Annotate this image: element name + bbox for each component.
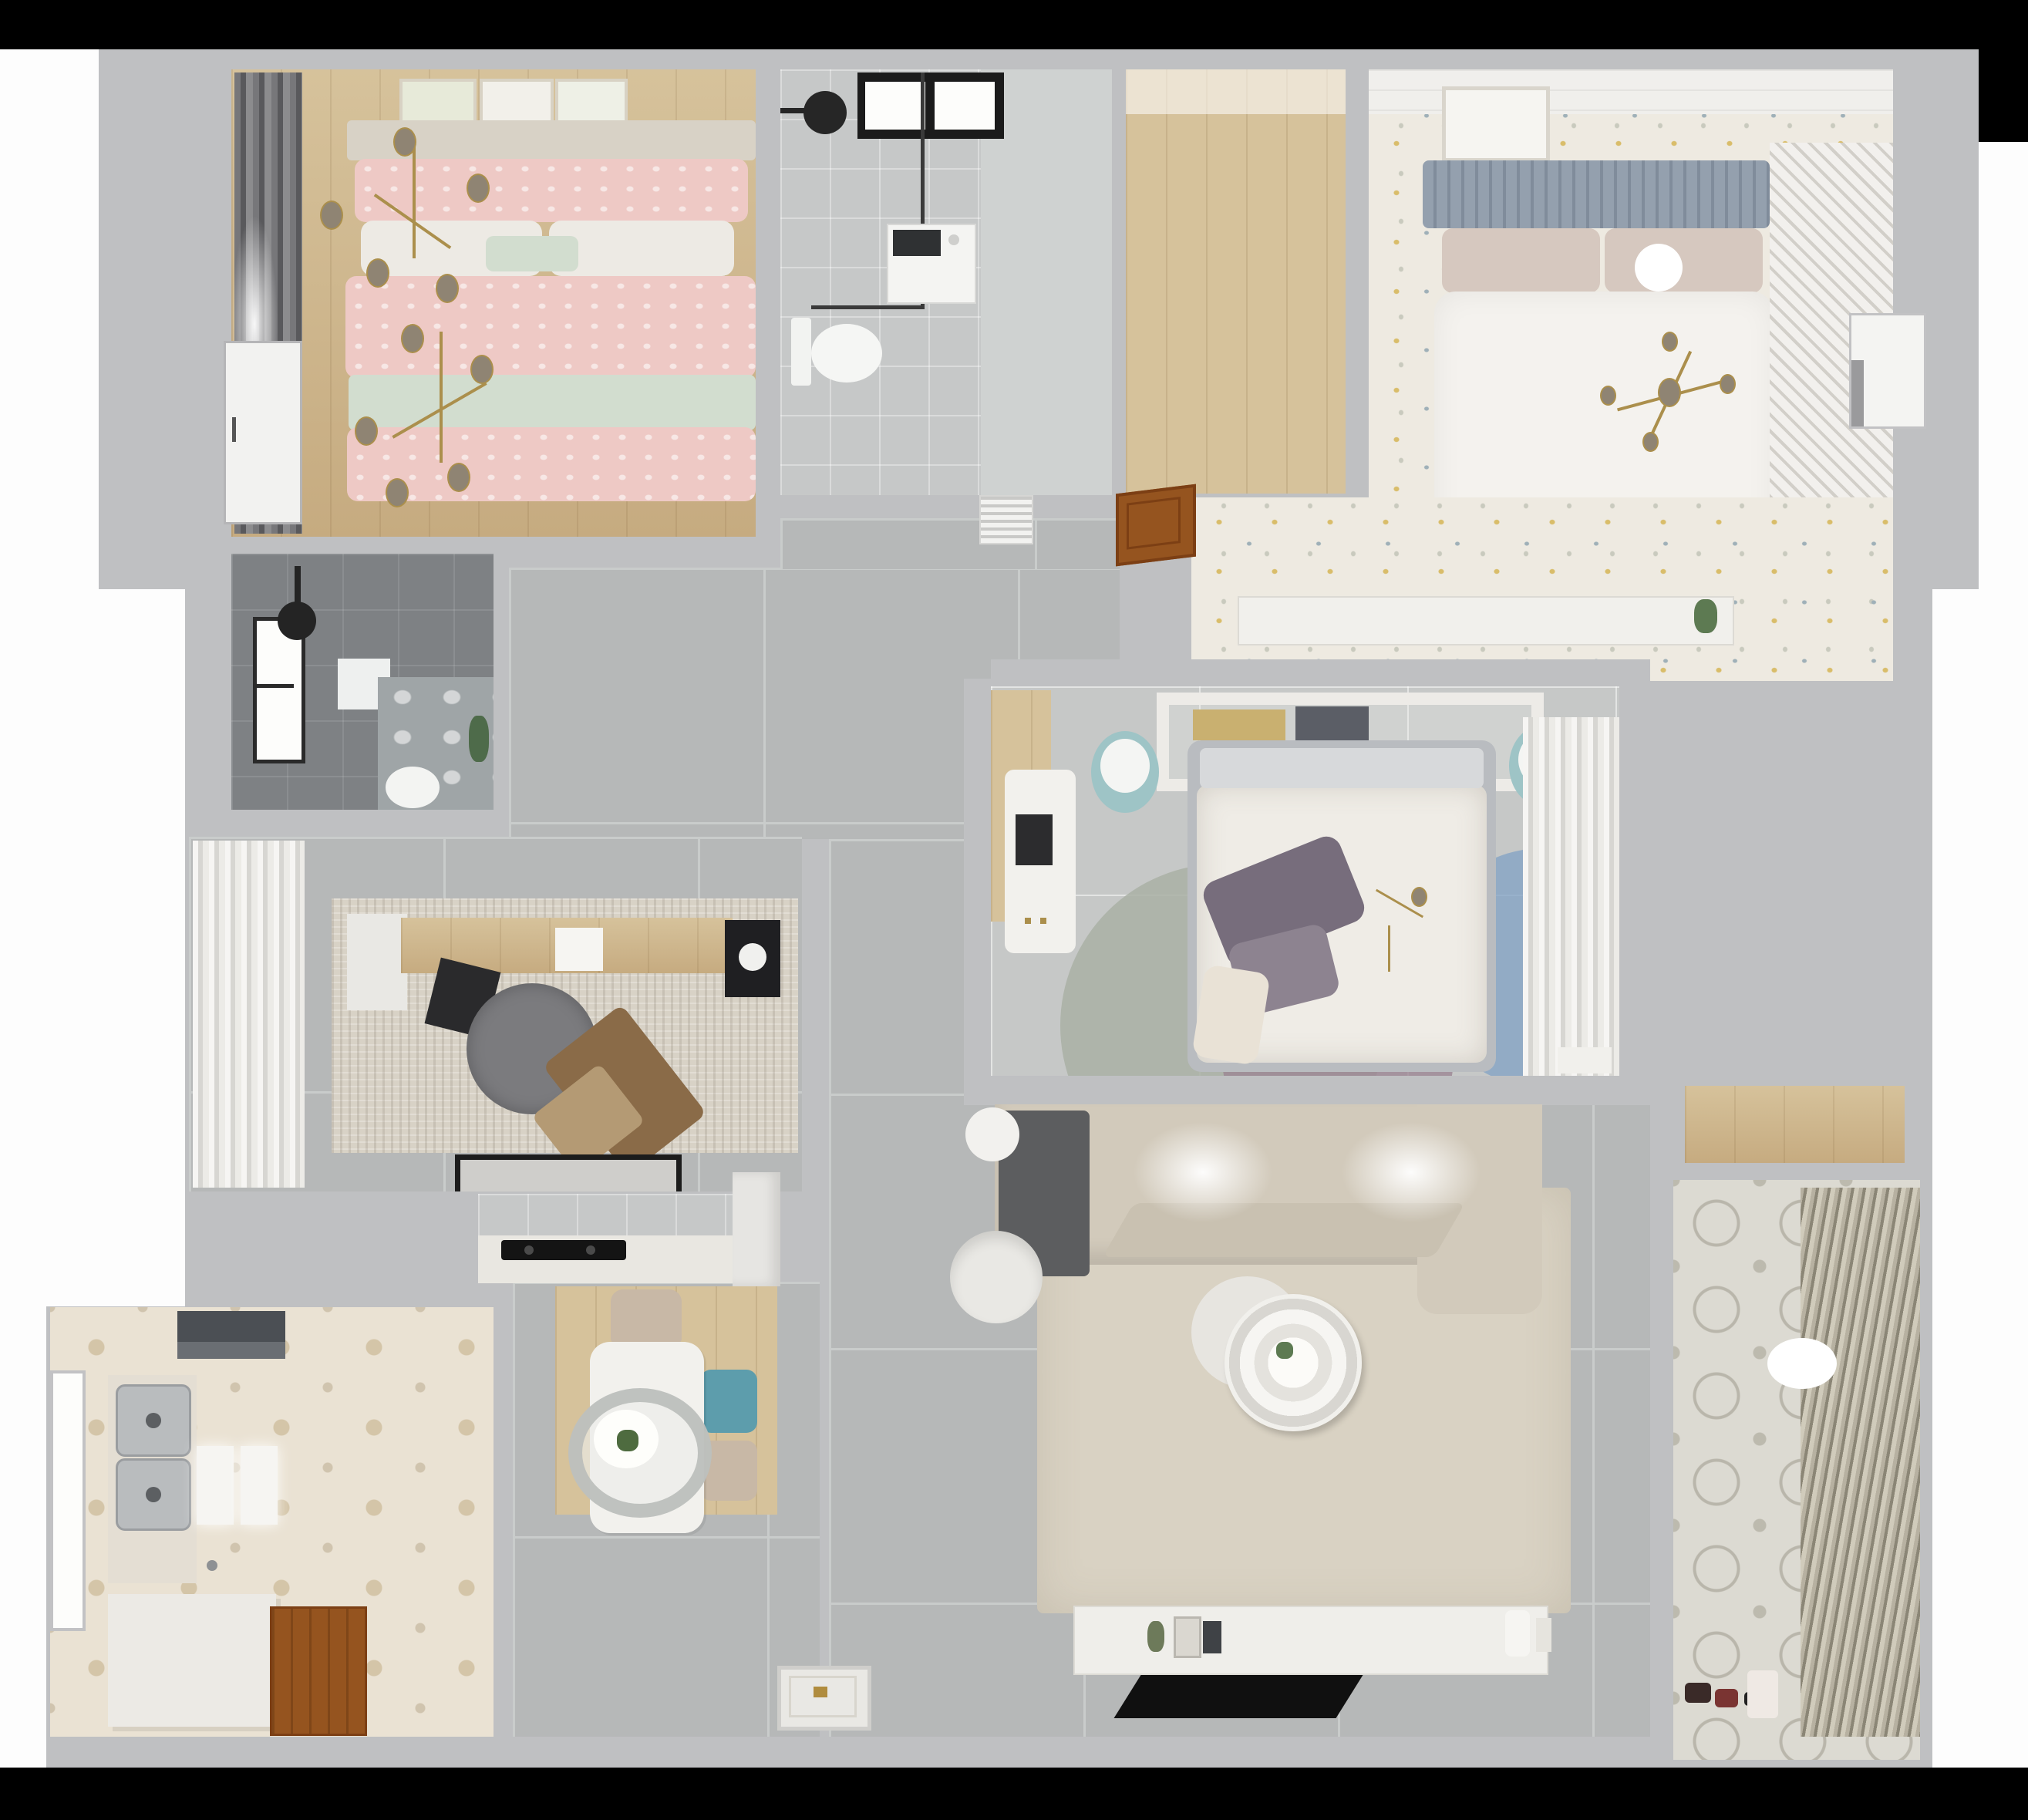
room-kitchen <box>50 1307 494 1737</box>
shower-head <box>278 602 316 640</box>
sheer-wardrobe <box>1523 717 1619 1076</box>
wall-art-frame <box>399 79 477 125</box>
niche-wood-cabinet <box>1685 1086 1905 1163</box>
hallway-under-bath <box>780 518 1120 569</box>
toy <box>1685 1683 1711 1703</box>
desk-white-panel <box>347 914 407 1010</box>
letterbox-top <box>0 0 2028 49</box>
light-spot <box>1134 1122 1272 1222</box>
books <box>1295 706 1369 740</box>
slat-headboard <box>1423 160 1770 228</box>
armchair <box>950 1231 1043 1323</box>
ceiling-lamp <box>1767 1338 1837 1389</box>
room-main-bathroom <box>780 69 1112 495</box>
room-balcony <box>1673 1180 1920 1760</box>
island-counter <box>108 1594 276 1727</box>
table-sprig <box>1276 1342 1293 1359</box>
room-study <box>189 837 802 1191</box>
range-hood <box>177 1311 285 1359</box>
shower-stem <box>295 566 301 605</box>
ball-lamp <box>1635 244 1683 292</box>
console-frame <box>1203 1621 1221 1653</box>
bed <box>1187 740 1496 1072</box>
sputnik-chandelier <box>1600 332 1747 463</box>
console-cup <box>1536 1618 1551 1652</box>
door-mat <box>455 1154 682 1191</box>
sheer-curtains <box>193 841 305 1188</box>
pillow <box>1605 228 1763 293</box>
dining-chair-beige <box>611 1289 682 1343</box>
shower-glass <box>811 305 925 309</box>
dressing-corridor <box>1191 497 1893 681</box>
gold-chandelier <box>320 127 505 335</box>
room-shower <box>231 554 494 810</box>
tv-console <box>1073 1606 1548 1675</box>
toy <box>1715 1689 1738 1707</box>
induction-cooktop <box>501 1240 626 1260</box>
tall-cabinet <box>733 1172 780 1286</box>
ceiling-shade <box>1126 69 1346 114</box>
laptop <box>1016 814 1053 865</box>
picture-frame <box>1442 86 1550 162</box>
console-frame <box>1174 1616 1201 1658</box>
shower-head <box>803 91 847 134</box>
round-stool <box>1091 731 1159 813</box>
shower-arm <box>780 108 808 113</box>
console-bottle <box>1147 1621 1164 1652</box>
dining-chair-teal <box>700 1370 757 1433</box>
floor-plan-render <box>0 0 2028 1820</box>
white-door <box>224 341 302 524</box>
wall <box>1619 686 1673 1105</box>
sink-basin <box>116 1458 191 1531</box>
desk <box>1005 770 1076 953</box>
bathroom-window <box>857 72 1004 139</box>
open-wooden-door <box>1116 484 1196 567</box>
plant <box>469 716 489 762</box>
console-shelf <box>1238 596 1734 645</box>
wall-art-frame <box>480 79 554 125</box>
entry-mat <box>777 1666 871 1731</box>
pillow <box>1442 228 1600 293</box>
sink-basin <box>116 1384 191 1457</box>
laundry-bag <box>1747 1670 1778 1718</box>
table-plant <box>617 1430 638 1451</box>
side-table <box>965 1107 1019 1161</box>
flat-tv <box>1114 1675 1363 1718</box>
light-spot <box>1342 1122 1481 1222</box>
washing-machine <box>887 224 976 304</box>
room-master-bedroom <box>231 69 756 537</box>
wall <box>964 1076 1650 1105</box>
coffee-table <box>1225 1294 1362 1431</box>
desk-paper <box>555 928 603 971</box>
wood-door <box>270 1606 367 1736</box>
gold-chandelier <box>355 324 532 509</box>
wall-art-frame <box>555 79 628 125</box>
toilet <box>386 767 440 808</box>
vent-grille-icon <box>979 495 1033 544</box>
cutting-board <box>241 1446 278 1525</box>
folded-sheet <box>1200 748 1484 788</box>
books <box>1193 709 1285 740</box>
wall <box>991 659 1650 686</box>
desk-monitor <box>725 920 780 997</box>
room-walk-in-storage <box>1126 69 1346 494</box>
room-kids-bedroom <box>991 686 1619 1076</box>
letterbox-bottom <box>0 1768 2028 1820</box>
entry-door <box>1849 313 1926 429</box>
cutting-board <box>197 1446 234 1525</box>
nightstand <box>1558 1047 1612 1073</box>
console-vase <box>1505 1610 1530 1657</box>
kitchen-window <box>50 1370 86 1631</box>
toilet <box>811 324 882 383</box>
window-blinds <box>1801 1188 1920 1737</box>
wall <box>964 679 991 1105</box>
plant <box>1694 599 1717 633</box>
toilet-tank <box>791 318 811 386</box>
faucet <box>207 1560 217 1571</box>
